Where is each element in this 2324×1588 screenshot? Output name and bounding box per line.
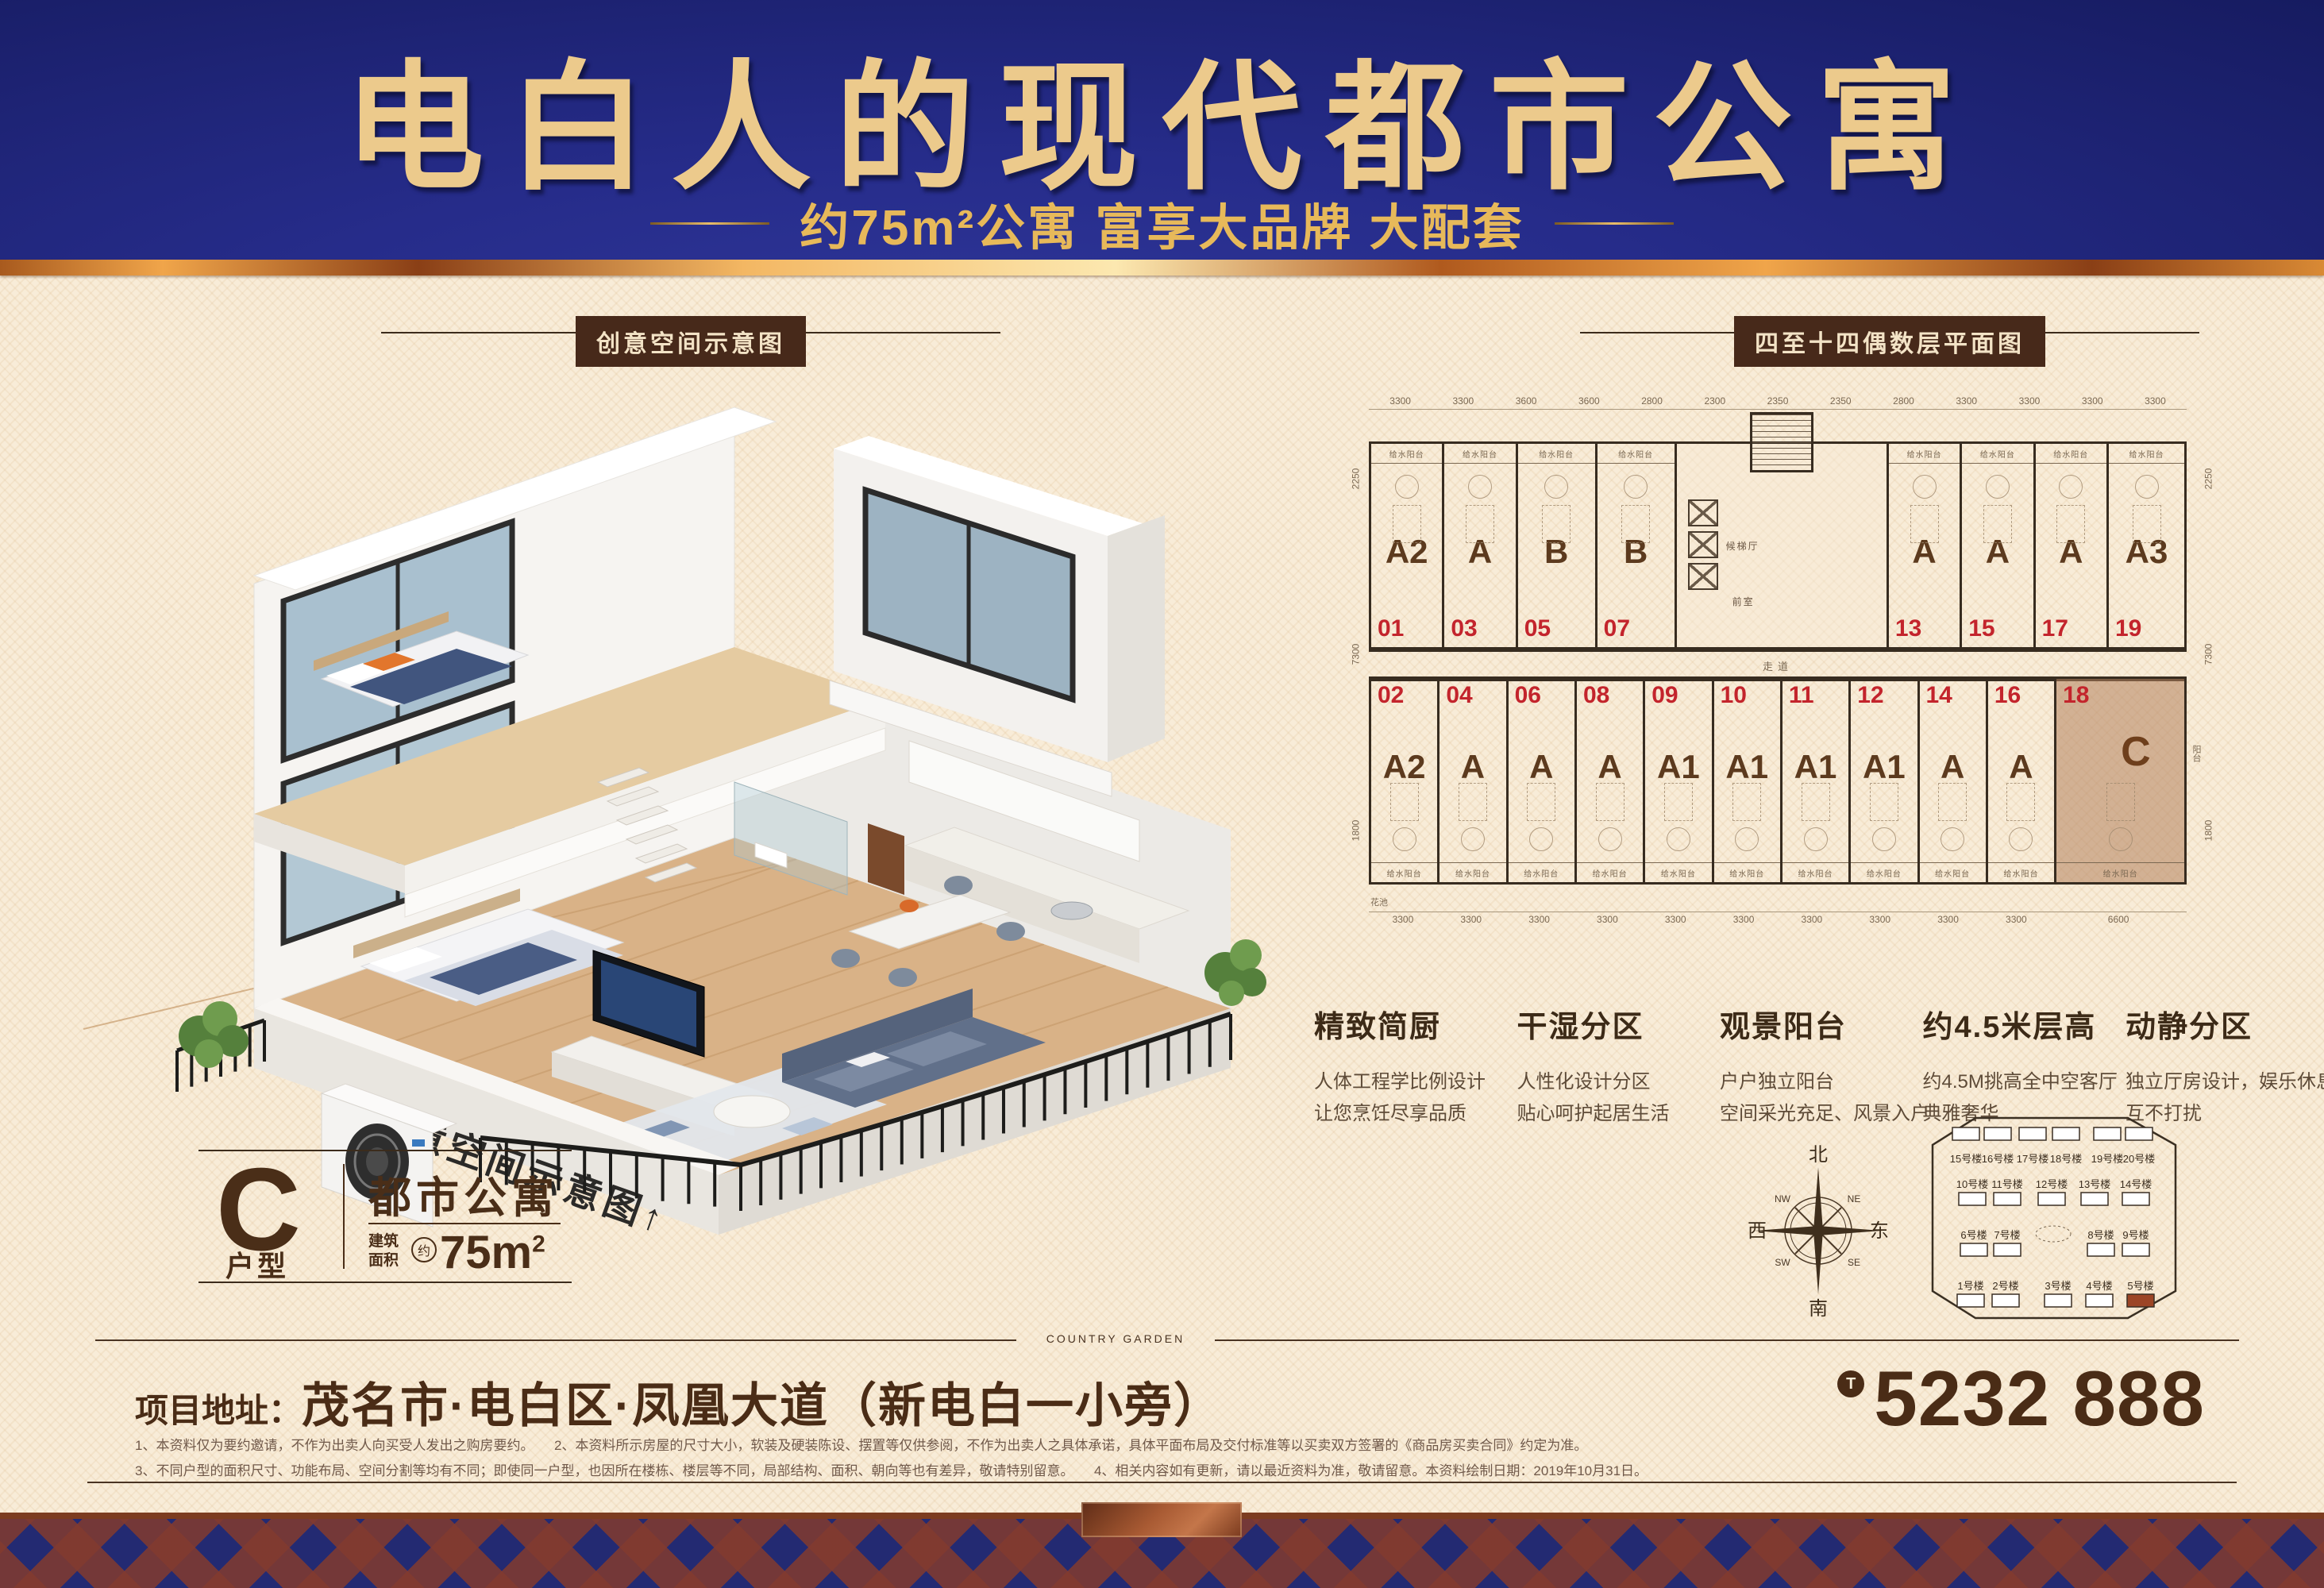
unit-number: 01 <box>1378 615 1404 642</box>
phone-icon: T <box>1837 1370 1864 1397</box>
feature-desc-line: 户户独立阳台 <box>1720 1066 1901 1098</box>
dim-value: 3300 <box>1709 912 1778 926</box>
building-footprint <box>1992 1294 2019 1307</box>
building-label: 2号楼 <box>1992 1280 2018 1292</box>
dim-value: 3300 <box>1369 912 1437 926</box>
compass-ne-label: NE <box>1848 1193 1861 1204</box>
site-plan: 15号楼16号楼17号楼18号楼19号楼20号楼10号楼11号楼12号楼13号楼… <box>1928 1113 2180 1323</box>
unit-room: A16 <box>1988 679 2054 862</box>
area-label-line1: 建筑 <box>368 1233 399 1250</box>
disclaimer-line-1: 1、本资料仅为要约邀请，不作为出卖人向买受人发出之购房要约。 2、本资料所示房屋… <box>135 1434 2215 1454</box>
unit-type-label: A <box>1941 748 1964 786</box>
compass-rose: 北 南 西 东 NW NE SW SE <box>1743 1145 1894 1318</box>
unit-room: A202 <box>1371 679 1437 862</box>
unit-room: A08 <box>1577 679 1643 862</box>
compass-n-label: 北 <box>1809 1145 1828 1166</box>
building-footprint <box>2126 1127 2152 1140</box>
unit-number: 13 <box>1895 615 1921 642</box>
building-footprint <box>2019 1127 2046 1140</box>
floorplan-unit-03: 给水阳台A03 <box>1442 441 1517 649</box>
unit-room: A06 <box>1509 679 1574 862</box>
unit-type-label: A1 <box>1794 748 1837 786</box>
feature-column: 干湿分区人性化设计分区贴心呵护起居生活 <box>1517 1002 1698 1129</box>
building-footprint <box>2081 1193 2108 1205</box>
unit-type-label: A <box>1912 533 1936 571</box>
unit-type-label: A2 <box>1383 748 1426 786</box>
dim-value: 3300 <box>1914 912 1983 926</box>
floorplan-unit-16: 给水阳台A16 <box>1986 676 2056 885</box>
unit-room: A112 <box>1851 679 1917 862</box>
floorplan-dims-bottom: 3300330033003300330033003300330033003300… <box>1369 912 2187 926</box>
floorplan: 3300330036003600280023002350235028003300… <box>1342 395 2214 926</box>
floorplan-bottom-row: 给水阳台A202给水阳台A04给水阳台A06给水阳台A08给水阳台A109给水阳… <box>1369 676 2187 885</box>
side-balcony-label: 阳台 <box>2190 745 2203 762</box>
unit-number: 10 <box>1721 682 1747 709</box>
building-label: 13号楼 <box>2079 1178 2110 1190</box>
dim-value: 2250 <box>2203 468 2214 490</box>
dim-value: 3300 <box>1437 912 1505 926</box>
floorplan-unit-04: 给水阳台A04 <box>1437 676 1508 885</box>
building-footprint <box>2052 1127 2079 1140</box>
floorplan-unit-07: 给水阳台B07 <box>1595 441 1677 649</box>
unit-card-divider <box>343 1164 345 1269</box>
poster: 电白人的现代都市公寓 约75m²公寓 富享大品牌 大配套 创意空间示意图 四至十… <box>0 0 2324 1588</box>
unit-number: 14 <box>1926 682 1952 709</box>
brand-name: COUNTRY GARDEN <box>1046 1332 1185 1345</box>
feature-column: 约4.5米层高约4.5M挑高全中空客厅典雅奢华 <box>1923 1002 2104 1129</box>
unit-number: 09 <box>1651 682 1678 709</box>
feature-desc-line: 人性化设计分区 <box>1517 1066 1698 1098</box>
unit-balcony-label: 给水阳台 <box>2036 444 2106 464</box>
unit-number: 12 <box>1857 682 1883 709</box>
floorplan-dims-right: 225073001800 <box>2198 427 2210 889</box>
unit-type-label: A <box>1468 533 1492 571</box>
dim-value: 6600 <box>2050 912 2187 926</box>
unit-balcony-label: 给水阳台 <box>1988 862 2054 882</box>
building-label: 12号楼 <box>2036 1178 2068 1190</box>
brand-line-right <box>1215 1339 2239 1341</box>
floorplan-unit-18: 给水阳台C18 <box>2054 676 2187 885</box>
compass-needle-n <box>1813 1167 1823 1231</box>
compass-e-label: 东 <box>1870 1220 1889 1242</box>
unit-room: B05 <box>1518 464 1595 647</box>
feature-column: 精致简厨人体工程学比例设计让您烹饪尽享品质 <box>1314 1002 1495 1129</box>
unit-balcony-label: 给水阳台 <box>1371 444 1442 464</box>
dim-value: 3300 <box>1846 912 1914 926</box>
dim-value: 3300 <box>1505 912 1574 926</box>
building-footprint <box>1960 1243 1987 1256</box>
area-label-line2: 面积 <box>368 1252 399 1269</box>
kitchen-sink <box>1051 902 1093 919</box>
corridor-label: 走道 <box>1763 658 1793 673</box>
building-footprint <box>1959 1193 1986 1205</box>
feature-desc-line: 贴心呵护起居生活 <box>1517 1098 1698 1130</box>
building-footprint <box>1994 1193 2021 1205</box>
site-plan-pond <box>2036 1226 2071 1242</box>
unit-type-label: A1 <box>1863 748 1906 786</box>
building-label: 15号楼 <box>1950 1153 1982 1165</box>
building-label: 16号楼 <box>1982 1153 2014 1165</box>
unit-balcony-label: 给水阳台 <box>1645 862 1711 882</box>
stair-lobby-label: 候梯厅 <box>1726 539 1759 553</box>
feature-desc-line: 约4.5M挑高全中空客厅 <box>1923 1066 2104 1098</box>
unit-type-label: B <box>1544 533 1568 571</box>
area-value: 75m2 <box>440 1226 545 1279</box>
unit-number: 04 <box>1446 682 1472 709</box>
subtitle: 约75m²公寓 富享大品牌 大配套 <box>800 187 1524 259</box>
phone-number: 5232 888 <box>1874 1359 2205 1437</box>
floorplan-dims-left: 225073001800 <box>1345 427 1358 889</box>
building-label: 14号楼 <box>2120 1178 2152 1190</box>
unit-room: A111 <box>1783 679 1848 862</box>
floorplan-unit-08: 给水阳台A08 <box>1574 676 1645 885</box>
unit-type-label: A2 <box>1386 533 1428 571</box>
project-address: 项目地址：茂名市·电白区·凤凰大道（新电白一小旁） <box>135 1367 1223 1436</box>
unit-number: 07 <box>1604 615 1630 642</box>
unit-room: A17 <box>2036 464 2106 647</box>
unit-type-label: A3 <box>2126 533 2168 571</box>
feature-desc-line: 空间采光充足、风景入户 <box>1720 1098 1901 1130</box>
subtitle-left-line <box>650 222 769 225</box>
unit-number: 06 <box>1515 682 1541 709</box>
unit-room: A14 <box>1920 679 1986 862</box>
building-label: 1号楼 <box>1957 1280 1983 1292</box>
dim-value: 3600 <box>1558 395 1621 410</box>
building-footprint <box>2087 1243 2114 1256</box>
unit-type-label: B <box>1624 533 1648 571</box>
dim-value: 3300 <box>1778 912 1846 926</box>
brand-line-left <box>95 1339 1016 1341</box>
stair-tower <box>1750 412 1813 472</box>
unit-name-underline <box>368 1223 561 1224</box>
dim-value: 3300 <box>1432 395 1494 410</box>
unit-balcony-label: 给水阳台 <box>1851 862 1917 882</box>
unit-number: 15 <box>1968 615 1994 642</box>
unit-type-label: C <box>2121 728 2151 776</box>
unit-number: 11 <box>1789 682 1814 709</box>
unit-number: 03 <box>1451 615 1477 642</box>
dim-value: 2250 <box>1350 468 1361 490</box>
compass-s-label: 南 <box>1809 1298 1828 1318</box>
unit-balcony-label: 给水阳台 <box>1577 862 1643 882</box>
phone-block: T 5232 888 <box>1837 1359 2205 1437</box>
unit-number: 05 <box>1524 615 1551 642</box>
unit-number: 16 <box>1994 682 2021 709</box>
dim-value: 2800 <box>1872 395 1935 410</box>
unit-type-label: A <box>2009 748 2033 786</box>
feature-column: 观景阳台户户独立阳台空间采光充足、风景入户 <box>1720 1002 1901 1129</box>
unit-balcony-label: 给水阳台 <box>1439 862 1505 882</box>
dim-value: 3300 <box>2124 395 2187 410</box>
main-title: 电白人的现代都市公寓 <box>0 14 2324 217</box>
building-footprint <box>2122 1193 2149 1205</box>
feature-desc-line: 人体工程学比例设计 <box>1314 1066 1495 1098</box>
lobby-label: 前室 <box>1732 595 1755 608</box>
unit-room: C18 <box>2056 679 2184 862</box>
elevator-shaft <box>1688 499 1718 526</box>
site-plan-buildings: 15号楼16号楼17号楼18号楼19号楼20号楼10号楼11号楼12号楼13号楼… <box>1950 1127 2155 1307</box>
floorplan-unit-13: 给水阳台A13 <box>1887 441 1962 649</box>
unit-balcony-label: 给水阳台 <box>1518 444 1595 464</box>
unit-balcony-label: 给水阳台 <box>1714 862 1780 882</box>
unit-number: 08 <box>1583 682 1609 709</box>
dining-flowers <box>900 900 919 912</box>
feature-desc-line: 让您烹饪尽享品质 <box>1314 1098 1495 1130</box>
compass-nw-label: NW <box>1775 1193 1791 1204</box>
building-footprint <box>1952 1127 1979 1140</box>
unit-room: A109 <box>1645 679 1711 862</box>
building-footprint <box>2122 1243 2149 1256</box>
floorplan-unit-12: 给水阳台A112 <box>1848 676 1919 885</box>
feature-desc-line: 独立厅房设计，娱乐休息 <box>2126 1066 2307 1098</box>
unit-type-label: A <box>1529 748 1553 786</box>
floorplan-unit-19: 给水阳台A319 <box>2106 441 2187 649</box>
dim-value: 3300 <box>1935 395 1998 410</box>
dim-value: 1800 <box>2203 819 2214 841</box>
disclaimer-line-2: 3、不同户型的面积尺寸、功能布局、空间分割等均有不同；即使同一户型，也因所在楼栋… <box>135 1459 2215 1479</box>
floorplan-core: 候梯厅前室 <box>1675 441 1889 649</box>
unit-balcony-label: 给水阳台 <box>1962 444 2033 464</box>
planter-label: 花池 <box>1370 896 1388 908</box>
dim-value: 7300 <box>2203 644 2214 665</box>
coffee-table <box>714 1096 790 1127</box>
unit-room: A110 <box>1714 679 1780 862</box>
building-label: 9号楼 <box>2122 1229 2149 1241</box>
floorplan-unit-14: 给水阳台A14 <box>1917 676 1988 885</box>
unit-type-label: A1 <box>1657 748 1700 786</box>
address-label: 项目地址： <box>135 1392 302 1429</box>
gold-divider-strip <box>0 260 2324 276</box>
unit-number: 18 <box>2063 682 2089 709</box>
unit-name: 都市公寓 <box>368 1162 559 1225</box>
dim-value: 3300 <box>1641 912 1709 926</box>
unit-number: 17 <box>2042 615 2068 642</box>
elevator-shaft <box>1688 531 1718 558</box>
unit-balcony-label: 给水阳台 <box>2109 444 2184 464</box>
dim-value: 3300 <box>1573 912 1641 926</box>
address-value: 茂名市·电白区·凤凰大道（新电白一小旁） <box>302 1379 1223 1432</box>
unit-type-label: A <box>1986 533 2010 571</box>
upper-right-side <box>1108 515 1165 762</box>
compass-needle-s <box>1813 1231 1823 1294</box>
floorplan-unit-11: 给水阳台A111 <box>1780 676 1851 885</box>
unit-room: A319 <box>2109 464 2184 647</box>
unit-room: A15 <box>1962 464 2033 647</box>
dim-value: 1800 <box>1350 819 1361 841</box>
dim-value: 3600 <box>1494 395 1557 410</box>
unit-number: 19 <box>2115 615 2141 642</box>
copper-accent-bar <box>1081 1502 1242 1537</box>
compass-se-label: SE <box>1848 1257 1860 1268</box>
area-sup: 2 <box>532 1231 545 1258</box>
ac-logo <box>412 1139 425 1147</box>
dim-value: 3300 <box>1998 395 2060 410</box>
floorplan-unit-05: 给水阳台B05 <box>1516 441 1598 649</box>
dim-value: 7300 <box>1350 644 1361 665</box>
building-label: 6号楼 <box>1960 1229 1987 1241</box>
dim-value: 2300 <box>1683 395 1746 410</box>
floorplan-body: 给水阳台A201给水阳台A03给水阳台B05给水阳台B07候梯厅前室给水阳台A1… <box>1369 427 2187 889</box>
unit-balcony-label: 给水阳台 <box>2056 862 2184 882</box>
building-label: 7号楼 <box>1994 1229 2020 1241</box>
area-number: 75m <box>440 1227 532 1278</box>
unit-balcony-label: 给水阳台 <box>1509 862 1574 882</box>
building-label: 5号楼 <box>2127 1280 2153 1292</box>
building-footprint <box>1994 1243 2021 1256</box>
building-footprint <box>1957 1294 1984 1307</box>
dim-value: 2350 <box>1809 395 1872 410</box>
building-highlighted <box>2127 1294 2154 1307</box>
compass-w-label: 西 <box>1748 1220 1767 1242</box>
compass-sw-label: SW <box>1775 1257 1790 1268</box>
feature-title: 动静分区 <box>2126 1002 2307 1046</box>
subtitle-right-line <box>1555 222 1674 225</box>
building-footprint <box>2038 1193 2065 1205</box>
floorplan-top-row: 给水阳台A201给水阳台A03给水阳台B05给水阳台B07候梯厅前室给水阳台A1… <box>1369 441 2187 649</box>
feature-title: 观景阳台 <box>1720 1002 1901 1046</box>
area-label: 建筑 面积 <box>368 1232 399 1270</box>
unit-card: C 户型 都市公寓 建筑 面积 约 75m2 <box>198 1150 572 1283</box>
unit-room: A04 <box>1439 679 1505 862</box>
unit-balcony-label: 给水阳台 <box>1444 444 1515 464</box>
plant-left <box>179 1001 249 1068</box>
floorplan-unit-15: 给水阳台A15 <box>1960 441 2035 649</box>
unit-room: A201 <box>1371 464 1442 647</box>
unit-balcony-label: 给水阳台 <box>1920 862 1986 882</box>
dim-value: 2350 <box>1746 395 1809 410</box>
building-label: 4号楼 <box>2086 1280 2112 1292</box>
render-3d-apartment: ↑创意空间示意图↑ <box>83 337 1290 1235</box>
floorplan-dims-top: 3300330036003600280023002350235028003300… <box>1369 395 2187 410</box>
building-label: 20号楼 <box>2123 1153 2155 1165</box>
approx-badge: 约 <box>411 1237 437 1262</box>
building-label: 19号楼 <box>2091 1153 2123 1165</box>
feature-title: 精致简厨 <box>1314 1002 1495 1046</box>
unit-balcony-label: 给水阳台 <box>1783 862 1848 882</box>
unit-number: 02 <box>1378 682 1404 709</box>
dim-value: 3300 <box>2061 395 2124 410</box>
elevator-shaft <box>1688 563 1718 590</box>
building-label: 11号楼 <box>1991 1178 2023 1190</box>
unit-type-label: A <box>1598 748 1621 786</box>
brand-divider: COUNTRY GARDEN <box>95 1332 2239 1348</box>
building-label: 3号楼 <box>2045 1280 2071 1292</box>
subtitle-row: 约75m²公寓 富享大品牌 大配套 <box>0 187 2324 259</box>
building-label: 18号楼 <box>2050 1153 2082 1165</box>
unit-type-label: A <box>1461 748 1485 786</box>
unit-type-label: A1 <box>1725 748 1768 786</box>
feature-list: 精致简厨人体工程学比例设计让您烹饪尽享品质干湿分区人性化设计分区贴心呵护起居生活… <box>1314 1002 2307 1129</box>
floorplan-unit-01: 给水阳台A201 <box>1369 441 1444 649</box>
floorplan-unit-02: 给水阳台A202 <box>1369 676 1439 885</box>
section-plan-label: 四至十四偶数层平面图 <box>1734 316 2045 367</box>
floorplan-unit-06: 给水阳台A06 <box>1506 676 1577 885</box>
dim-value: 3300 <box>1369 395 1432 410</box>
unit-balcony-label: 给水阳台 <box>1598 444 1675 464</box>
dim-value: 3300 <box>1982 912 2050 926</box>
unit-balcony-label: 给水阳台 <box>1889 444 1960 464</box>
unit-room: B07 <box>1598 464 1675 647</box>
unit-room: A03 <box>1444 464 1515 647</box>
feature-title: 干湿分区 <box>1517 1002 1698 1046</box>
floorplan-unit-17: 给水阳台A17 <box>2033 441 2109 649</box>
unit-balcony-label: 给水阳台 <box>1371 862 1437 882</box>
unit-letter-label: 户型 <box>225 1243 289 1285</box>
feature-column: 动静分区独立厅房设计，娱乐休息互不打扰 <box>2126 1002 2307 1129</box>
unit-type-label: A <box>2059 533 2083 571</box>
building-label: 10号楼 <box>1956 1178 1988 1190</box>
building-label: 8号楼 <box>2087 1229 2114 1241</box>
building-footprint <box>2086 1294 2113 1307</box>
floorplan-unit-10: 给水阳台A110 <box>1712 676 1783 885</box>
building-footprint <box>2094 1127 2121 1140</box>
building-footprint <box>1984 1127 2011 1140</box>
top-banner: 电白人的现代都市公寓 约75m²公寓 富享大品牌 大配套 <box>0 0 2324 260</box>
footer-rule <box>87 1482 2237 1483</box>
building-label: 17号楼 <box>2017 1153 2048 1165</box>
unit-room: A13 <box>1889 464 1960 647</box>
building-footprint <box>2045 1294 2072 1307</box>
dim-value: 2800 <box>1621 395 1683 410</box>
floorplan-unit-09: 给水阳台A109 <box>1643 676 1713 885</box>
feature-title: 约4.5米层高 <box>1923 1002 2104 1046</box>
